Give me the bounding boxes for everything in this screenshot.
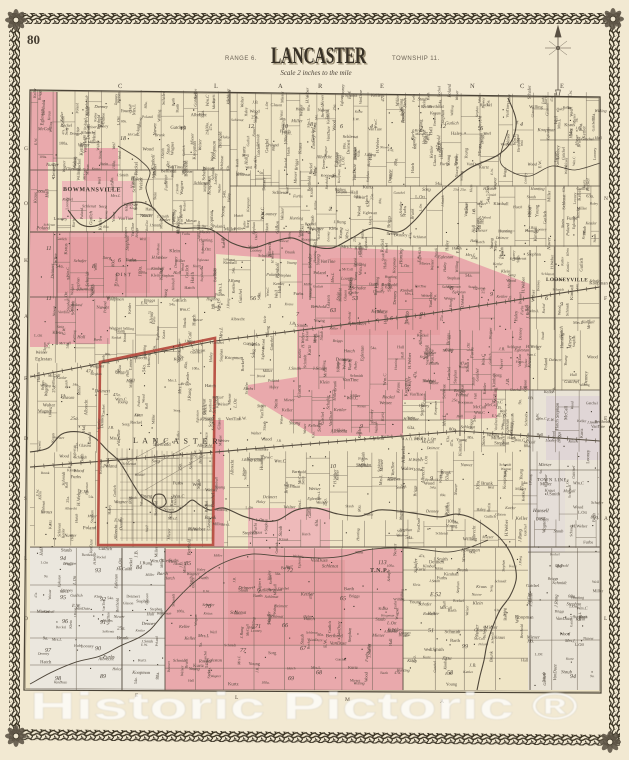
svg-text:Berthold: Berthold: [218, 131, 223, 148]
svg-text:Wm.C: Wm.C: [150, 559, 162, 564]
svg-text:Gutlich: Gutlich: [98, 546, 113, 551]
svg-text:Schlenat: Schlenat: [213, 397, 218, 414]
svg-text:Hatch: Hatch: [410, 162, 415, 173]
svg-text:Mieser: Mieser: [477, 143, 482, 156]
svg-text:McCall: McCall: [564, 405, 569, 420]
svg-text:Koopman: Koopman: [246, 197, 250, 213]
svg-text:80: 80: [27, 32, 40, 47]
svg-text:Furbs: Furbs: [109, 180, 114, 190]
svg-text:L.Ott: L.Ott: [419, 204, 423, 212]
svg-text:Rockel: Rockel: [96, 555, 106, 559]
svg-text:Willing: Willing: [579, 383, 590, 387]
svg-text:Young: Young: [289, 421, 301, 426]
svg-text:93: 93: [95, 568, 101, 574]
svg-text:Stephan: Stephan: [171, 165, 175, 177]
svg-text:9a.: 9a.: [202, 224, 207, 228]
svg-text:100a.: 100a.: [387, 564, 395, 568]
svg-text:Kurtz: Kurtz: [378, 606, 388, 611]
svg-text:Nuwer: Nuwer: [52, 305, 56, 316]
svg-text:100a.: 100a.: [173, 562, 181, 566]
svg-text:Wagner: Wagner: [114, 499, 128, 504]
svg-text:Wood: Wood: [331, 119, 336, 130]
svg-text:100a.: 100a.: [284, 134, 289, 145]
svg-text:Weil: Weil: [396, 533, 404, 538]
svg-text:Haley: Haley: [568, 128, 573, 140]
svg-text:47a.: 47a.: [113, 392, 121, 397]
svg-text:Stein: Stein: [457, 508, 461, 516]
svg-text:Brunk: Brunk: [481, 482, 493, 487]
svg-text:Mieser: Mieser: [507, 278, 511, 290]
svg-text:Albrecht: Albrecht: [231, 316, 246, 321]
svg-text:Mrs.L: Mrs.L: [167, 516, 179, 521]
svg-text:80a.: 80a.: [103, 225, 109, 229]
svg-text:Klein: Klein: [226, 94, 231, 105]
svg-text:Mrs.L: Mrs.L: [197, 633, 210, 638]
svg-text:Historic Pictoric ®: Historic Pictoric ®: [30, 686, 578, 728]
svg-text:H.Weber: H.Weber: [544, 474, 548, 488]
svg-text:E.W.: E.W.: [353, 117, 360, 121]
svg-text:9a.: 9a.: [590, 674, 595, 678]
svg-text:Schafer: Schafer: [244, 381, 249, 394]
svg-text:Keller: Keller: [183, 636, 196, 641]
svg-text:Miller: Miller: [144, 573, 155, 577]
svg-text:Hall: Hall: [146, 611, 156, 616]
svg-text:VanDuze: VanDuze: [494, 417, 498, 431]
svg-text:Kraus: Kraus: [91, 167, 102, 171]
svg-text:Kraus: Kraus: [357, 404, 366, 408]
svg-text:Gatchel: Gatchel: [243, 341, 257, 346]
svg-text:Hall: Hall: [126, 370, 130, 378]
svg-text:54a.: 54a.: [133, 677, 138, 684]
svg-text:Staub: Staub: [593, 234, 597, 243]
svg-text:25a.: 25a.: [460, 188, 466, 192]
svg-text:Eglestan: Eglestan: [57, 575, 61, 589]
svg-text:Haley: Haley: [477, 508, 486, 512]
svg-text:Berthold: Berthold: [437, 135, 442, 152]
svg-text:J.Smith: J.Smith: [441, 195, 445, 206]
svg-text:Weiser: Weiser: [139, 177, 144, 191]
svg-text:66: 66: [282, 623, 288, 629]
svg-text:Looney: Looney: [510, 421, 515, 437]
svg-text:Mieser: Mieser: [537, 463, 551, 468]
svg-text:J.Smith: J.Smith: [430, 648, 445, 653]
svg-text:Kurtz: Kurtz: [354, 110, 363, 114]
svg-text:Mrs.L: Mrs.L: [556, 118, 561, 129]
svg-text:Sorg: Sorg: [268, 650, 277, 655]
svg-text:E.W.: E.W.: [456, 244, 461, 253]
svg-text:Briggs: Briggs: [478, 216, 483, 229]
svg-text:Wm.C: Wm.C: [577, 605, 588, 610]
svg-text:63a.: 63a.: [562, 186, 566, 192]
svg-text:Nuwer: Nuwer: [319, 94, 324, 106]
svg-text:Hansell: Hansell: [532, 509, 549, 514]
svg-text:Schlenat: Schlenat: [236, 172, 251, 177]
svg-text:J.Smith: J.Smith: [60, 116, 65, 128]
svg-text:Gutlich: Gutlich: [184, 264, 189, 278]
svg-text:E.W.: E.W.: [498, 413, 507, 418]
svg-text:Wm.C: Wm.C: [387, 478, 397, 482]
svg-text:H.Weber: H.Weber: [549, 254, 554, 269]
svg-text:6: 6: [340, 124, 343, 130]
svg-text:Gutlich: Gutlich: [172, 299, 187, 304]
svg-text:Young: Young: [111, 212, 116, 223]
svg-text:J.B.: J.B.: [252, 100, 259, 105]
svg-text:Keller: Keller: [578, 188, 583, 200]
svg-text:Mrs.L: Mrs.L: [573, 320, 584, 325]
svg-text:Wagner: Wagner: [257, 580, 262, 593]
svg-text:Klein: Klein: [406, 658, 417, 663]
svg-text:Mieser: Mieser: [199, 229, 211, 234]
svg-text:Haley: Haley: [422, 379, 434, 384]
svg-text:Kurtz: Kurtz: [241, 146, 246, 157]
svg-text:Hatch: Hatch: [163, 575, 175, 580]
svg-text:Mrs.L: Mrs.L: [330, 272, 335, 284]
svg-text:Hall: Hall: [388, 638, 393, 646]
svg-text:VanTine: VanTine: [381, 435, 393, 439]
svg-text:K: K: [24, 258, 28, 264]
svg-text:Sorg: Sorg: [422, 188, 431, 193]
svg-text:10: 10: [330, 464, 336, 470]
svg-text:100a.: 100a.: [39, 155, 47, 159]
svg-text:Sorg: Sorg: [251, 349, 256, 358]
svg-text:Klein: Klein: [469, 184, 473, 193]
svg-text:9a.: 9a.: [44, 574, 49, 578]
svg-text:Willing: Willing: [454, 261, 459, 273]
svg-text:Stephan: Stephan: [90, 372, 102, 376]
svg-text:Wagner: Wagner: [187, 571, 200, 576]
svg-text:Miller: Miller: [77, 385, 81, 396]
svg-text:Deimert: Deimert: [273, 603, 288, 608]
svg-text:Kettler: Kettler: [273, 281, 285, 286]
svg-text:E.W.: E.W.: [61, 327, 66, 336]
svg-text:Stein: Stein: [407, 415, 415, 420]
svg-text:Hunting: Hunting: [396, 667, 410, 672]
svg-text:J.Rung: J.Rung: [228, 278, 241, 283]
svg-text:Wood: Wood: [204, 503, 212, 507]
svg-text:Miller: Miller: [546, 190, 551, 202]
svg-text:Haley: Haley: [513, 310, 518, 322]
svg-text:Mrs.L: Mrs.L: [341, 244, 352, 249]
svg-text:Hunting: Hunting: [394, 358, 398, 370]
svg-text:Mrs.L: Mrs.L: [110, 193, 122, 198]
svg-text:Klein: Klein: [567, 439, 577, 444]
svg-text:Deimert: Deimert: [518, 292, 522, 304]
svg-text:Wagner: Wagner: [541, 519, 546, 533]
svg-text:Briggs: Briggs: [333, 339, 344, 343]
svg-text:Weiser: Weiser: [421, 294, 432, 298]
svg-text:Walter: Walter: [364, 512, 375, 516]
svg-text:Kraus: Kraus: [459, 384, 464, 395]
svg-text:Deimert: Deimert: [350, 321, 367, 326]
svg-text:Kettler: Kettler: [492, 262, 504, 266]
svg-text:Haley: Haley: [444, 239, 449, 250]
svg-text:Mrs.L: Mrs.L: [219, 327, 224, 340]
svg-text:Furbs: Furbs: [437, 575, 448, 580]
svg-text:Koopman: Koopman: [434, 401, 438, 416]
svg-text:Hatch: Hatch: [343, 348, 356, 353]
svg-text:Mieser: Mieser: [350, 679, 361, 683]
svg-text:Hatch: Hatch: [554, 419, 559, 431]
svg-text:25a.: 25a.: [66, 496, 70, 503]
svg-text:80a.: 80a.: [394, 158, 399, 166]
svg-text:Berthold: Berthold: [208, 399, 212, 412]
svg-text:Nuwer: Nuwer: [453, 483, 458, 496]
svg-text:Staub: Staub: [345, 504, 354, 508]
svg-text:Mieser: Mieser: [515, 487, 527, 491]
svg-text:11: 11: [46, 246, 52, 252]
svg-text:J.Rung: J.Rung: [187, 388, 192, 401]
svg-text:J.Rung: J.Rung: [518, 528, 523, 542]
svg-text:Gatchel: Gatchel: [212, 341, 224, 345]
svg-text:25a.: 25a.: [481, 287, 485, 294]
svg-text:Sorg: Sorg: [174, 409, 181, 413]
svg-text:Young: Young: [409, 599, 422, 604]
svg-text:Young: Young: [518, 468, 523, 480]
svg-text:Hatch: Hatch: [265, 223, 269, 233]
svg-text:Berthold: Berthold: [311, 304, 327, 309]
svg-text:Staub: Staub: [418, 96, 429, 101]
svg-text:Kettler: Kettler: [135, 629, 146, 633]
svg-text:80a.: 80a.: [114, 283, 120, 287]
svg-text:Wm.C: Wm.C: [474, 410, 485, 415]
svg-text:25a.: 25a.: [353, 235, 357, 242]
svg-text:54a.: 54a.: [575, 283, 579, 289]
svg-text:Wm.C: Wm.C: [266, 286, 270, 296]
svg-text:80a.: 80a.: [143, 101, 148, 108]
svg-text:Wood: Wood: [587, 354, 599, 359]
svg-text:Kraus: Kraus: [199, 417, 211, 422]
svg-text:Briggs: Briggs: [412, 485, 417, 496]
svg-text:Schafer: Schafer: [591, 500, 604, 505]
svg-text:Rockel: Rockel: [307, 638, 311, 649]
svg-text:J.B.: J.B.: [469, 663, 476, 668]
svg-text:Wagner: Wagner: [62, 160, 66, 172]
svg-text:Hall: Hall: [368, 152, 373, 161]
svg-text:Wm.C: Wm.C: [274, 459, 287, 464]
svg-text:J.B.: J.B.: [289, 321, 296, 326]
svg-text:25a.: 25a.: [370, 193, 374, 200]
svg-text:J.Rung: J.Rung: [334, 219, 347, 224]
svg-text:Keller: Keller: [427, 611, 440, 616]
svg-text:Briggs: Briggs: [349, 593, 360, 598]
svg-text:Mrs.L: Mrs.L: [465, 252, 477, 257]
svg-text:Barth: Barth: [79, 453, 84, 463]
svg-text:Willing: Willing: [49, 121, 53, 132]
svg-text:Looney: Looney: [326, 231, 330, 243]
svg-text:Schlenat: Schlenat: [102, 629, 115, 633]
svg-text:Poland: Poland: [142, 115, 153, 119]
svg-text:R: R: [318, 83, 323, 90]
svg-text:95: 95: [60, 595, 66, 601]
svg-text:Miller: Miller: [151, 414, 156, 425]
svg-text:Haley: Haley: [451, 132, 463, 137]
svg-text:Koopman: Koopman: [224, 356, 244, 361]
svg-text:Looney: Looney: [369, 409, 374, 421]
svg-text:Stein: Stein: [516, 255, 520, 262]
svg-text:Gatchel: Gatchel: [475, 368, 480, 382]
svg-text:E.W.: E.W.: [80, 490, 89, 495]
svg-text:Miller: Miller: [290, 118, 303, 123]
svg-text:Willing: Willing: [72, 330, 76, 341]
svg-text:Klein: Klein: [69, 620, 73, 629]
svg-text:100a.: 100a.: [111, 160, 116, 169]
svg-text:Looney: Looney: [592, 148, 597, 160]
svg-text:54a.: 54a.: [107, 596, 114, 600]
svg-text:VanDuze: VanDuze: [76, 607, 90, 611]
svg-text:Hatch: Hatch: [145, 206, 156, 211]
svg-text:Briggs: Briggs: [556, 431, 561, 442]
svg-text:Schmidt: Schmidt: [173, 658, 187, 663]
svg-text:Glason: Glason: [275, 220, 280, 234]
svg-text:E.W.: E.W.: [490, 168, 494, 175]
svg-text:63a.: 63a.: [253, 155, 257, 162]
svg-text:6: 6: [118, 258, 121, 264]
svg-text:Klein: Klein: [329, 226, 339, 231]
svg-text:VanDuze: VanDuze: [466, 161, 481, 166]
svg-text:Gatchel: Gatchel: [320, 411, 325, 425]
svg-text:VanTine: VanTine: [53, 253, 57, 265]
svg-text:Haley: Haley: [302, 615, 312, 619]
svg-text:VanDuze: VanDuze: [156, 243, 160, 256]
svg-text:Albrecht: Albrecht: [358, 241, 362, 256]
svg-text:Rockel: Rockel: [61, 197, 73, 201]
svg-text:25a.: 25a.: [332, 103, 337, 110]
svg-text:Willing: Willing: [400, 589, 404, 601]
svg-text:Kettler: Kettler: [333, 407, 347, 412]
svg-text:Stephan: Stephan: [89, 510, 94, 523]
svg-text:100a.: 100a.: [59, 141, 68, 146]
svg-text:Poland: Poland: [75, 103, 79, 114]
svg-text:Mrs.L: Mrs.L: [378, 474, 383, 485]
svg-text:Barth: Barth: [199, 575, 209, 580]
svg-text:Willing: Willing: [529, 104, 543, 109]
svg-text:Keller: Keller: [193, 88, 198, 99]
svg-text:9a.: 9a.: [539, 469, 543, 474]
svg-text:Mrs.L: Mrs.L: [218, 282, 223, 293]
svg-text:Mieser: Mieser: [166, 528, 171, 541]
svg-text:E.W.: E.W.: [68, 461, 72, 468]
svg-text:Deimert: Deimert: [51, 162, 56, 178]
svg-text:Koopman: Koopman: [131, 670, 151, 675]
svg-text:Gatchel: Gatchel: [581, 137, 593, 141]
svg-text:Briggs: Briggs: [480, 133, 484, 144]
svg-text:L.Ott: L.Ott: [116, 115, 121, 125]
svg-text:51: 51: [428, 628, 434, 634]
svg-text:Nuwer: Nuwer: [379, 145, 390, 149]
svg-text:Stephan: Stephan: [66, 298, 70, 311]
svg-text:E.W.: E.W.: [239, 415, 247, 420]
svg-text:Gatchel: Gatchel: [571, 465, 576, 479]
svg-text:Willing: Willing: [281, 117, 286, 131]
svg-text:Brunk: Brunk: [182, 317, 187, 328]
svg-text:68: 68: [316, 670, 322, 676]
svg-text:Denney: Denney: [61, 588, 73, 592]
svg-text:Kettler: Kettler: [231, 281, 236, 293]
svg-text:Haley: Haley: [134, 201, 138, 210]
svg-text:Hunting: Hunting: [215, 508, 227, 512]
svg-text:Hall: Hall: [524, 304, 529, 312]
svg-text:Nuwer: Nuwer: [113, 614, 126, 619]
svg-text:Albrecht: Albrecht: [418, 329, 423, 346]
svg-text:Albrecht: Albrecht: [471, 525, 476, 542]
svg-text:Miller: Miller: [577, 206, 588, 211]
svg-text:54a.: 54a.: [200, 110, 205, 118]
svg-text:63a.: 63a.: [495, 608, 501, 612]
svg-text:9a.: 9a.: [536, 347, 541, 351]
svg-text:Kurtz: Kurtz: [509, 564, 517, 568]
svg-text:Wagner: Wagner: [90, 363, 104, 368]
svg-text:Albrecht: Albrecht: [229, 459, 234, 475]
svg-text:Hall: Hall: [400, 352, 404, 358]
svg-text:Young: Young: [446, 523, 458, 528]
svg-text:VanTine: VanTine: [591, 424, 605, 429]
svg-text:Kurtz: Kurtz: [362, 185, 373, 190]
svg-text:Barth: Barth: [448, 609, 457, 613]
svg-text:Weil: Weil: [94, 263, 98, 270]
svg-text:L.Ott: L.Ott: [415, 194, 425, 199]
svg-text:J.Rung: J.Rung: [528, 474, 532, 485]
svg-text:Mieser: Mieser: [293, 171, 298, 184]
svg-text:Schlenat: Schlenat: [568, 485, 572, 498]
svg-text:Staub: Staub: [527, 194, 536, 199]
svg-text:G: G: [24, 146, 28, 152]
svg-text:E.W.: E.W.: [129, 259, 136, 263]
svg-text:Gatchel: Gatchel: [523, 524, 527, 536]
svg-text:Gutlich: Gutlich: [182, 145, 186, 156]
svg-text:L.Ott: L.Ott: [41, 561, 48, 565]
svg-text:80a.: 80a.: [121, 119, 127, 123]
svg-text:Briggs: Briggs: [404, 310, 409, 323]
svg-text:Nuwer: Nuwer: [583, 637, 594, 641]
svg-text:Eglestan: Eglestan: [113, 574, 118, 590]
svg-text:Schmidt: Schmidt: [524, 413, 528, 427]
svg-text:L.Ott: L.Ott: [265, 101, 269, 111]
svg-text:53: 53: [352, 296, 358, 302]
svg-text:Eglestan: Eglestan: [451, 290, 465, 294]
svg-text:Deimert: Deimert: [167, 661, 171, 672]
svg-text:Kettler: Kettler: [55, 376, 67, 380]
svg-text:Klein: Klein: [472, 601, 484, 606]
svg-text:Schafer: Schafer: [161, 91, 166, 105]
svg-text:J.B.: J.B.: [529, 226, 535, 230]
svg-text:Weil: Weil: [139, 237, 145, 241]
svg-text:Poland: Poland: [265, 272, 279, 277]
svg-text:L.Ott: L.Ott: [72, 575, 77, 586]
svg-text:Miller: Miller: [593, 588, 604, 593]
svg-text:Deimert: Deimert: [495, 236, 510, 240]
svg-text:Brunk: Brunk: [332, 381, 337, 392]
svg-text:McCall: McCall: [342, 267, 353, 271]
svg-text:Willing: Willing: [171, 209, 176, 223]
svg-text:Wm.C: Wm.C: [374, 119, 378, 129]
svg-text:Deimert: Deimert: [50, 263, 55, 280]
svg-text:Rockel: Rockel: [128, 557, 133, 570]
svg-text:E: E: [380, 83, 384, 90]
svg-text:Young: Young: [253, 111, 258, 123]
svg-text:54a.: 54a.: [487, 196, 492, 204]
svg-text:Schmidt: Schmidt: [179, 204, 183, 217]
svg-text:Kraus: Kraus: [67, 468, 76, 472]
svg-text:Koopman: Koopman: [337, 169, 341, 183]
svg-text:69: 69: [288, 676, 294, 682]
svg-text:63a.: 63a.: [365, 199, 370, 206]
svg-text:L.Ott: L.Ott: [424, 455, 428, 465]
svg-text:Schlenat: Schlenat: [377, 458, 381, 472]
svg-text:Nuwer: Nuwer: [499, 358, 504, 370]
svg-text:Klein: Klein: [319, 379, 331, 384]
svg-text:Briggs: Briggs: [548, 577, 559, 581]
svg-text:VanTine: VanTine: [64, 561, 76, 565]
